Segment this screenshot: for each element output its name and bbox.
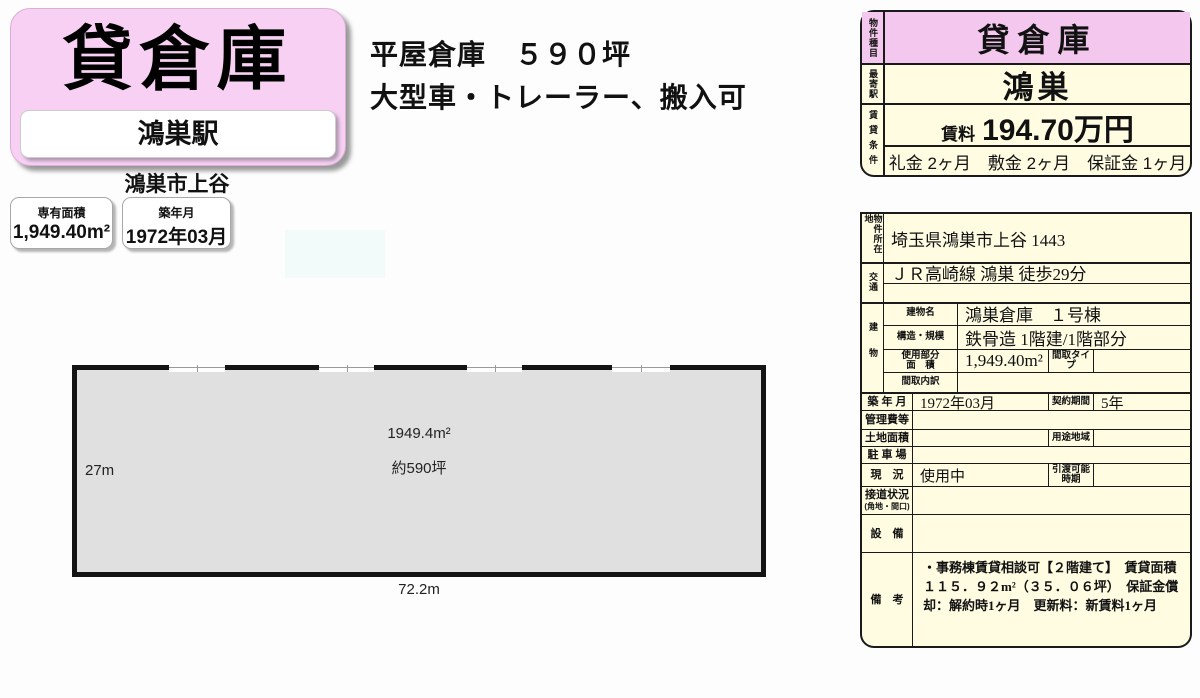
parking-value — [913, 447, 1190, 463]
equipment-value — [913, 515, 1190, 552]
property-type-title: 貸倉庫 — [11, 9, 345, 107]
management-fee-label: 管理費等 — [862, 411, 912, 429]
summary-type-label: 物件種目 — [868, 18, 877, 58]
remarks-value: ・事務棟賃貸相談可【２階建て】 賃貸面積 １１５．９２m²（３５．０６坪） 保証… — [913, 553, 1190, 646]
summary-type-label-cell: 物件種目 — [862, 12, 883, 63]
headline-line1: 平屋倉庫 ５９０坪 — [370, 33, 631, 73]
station-box: 鴻巣駅 — [20, 110, 336, 158]
exclusive-area-value: 1,949.40m² — [11, 222, 112, 244]
contract-value: 5年 — [1094, 394, 1190, 410]
summary-type-value: 貸倉庫 — [885, 12, 1190, 63]
built-value: 1972年03月 — [913, 394, 1048, 410]
transport-line2 — [884, 284, 1190, 302]
transport-label-cell: 交通 — [862, 262, 883, 302]
fees-row: 礼金 2ヶ月 敷金 2ヶ月 保証金 1ヶ月 — [885, 147, 1190, 175]
summary-terms-label-cell: 賃貸条件 — [862, 105, 883, 175]
rent-row: 賃料 194.70万円 — [885, 105, 1190, 145]
property-banner: 貸倉庫 鴻巣駅 — [10, 8, 346, 166]
building-area-value: 1,949.40m² — [958, 350, 1048, 372]
floorplan-area-m2: 1949.4m² — [77, 425, 761, 442]
handover-label: 引渡可能 時期 — [1049, 464, 1093, 486]
built-date-box: 築年月 1972年03月 — [122, 197, 231, 249]
status-value: 使用中 — [913, 464, 1048, 486]
location-label-cell: 物件所在地 — [862, 214, 883, 262]
plan-detail-value — [958, 373, 1190, 392]
summary-station-value: 鴻巣 — [885, 65, 1190, 103]
road-label-line1: 接道状況 — [865, 489, 909, 501]
road-value — [913, 487, 1190, 514]
door-tick — [641, 365, 642, 372]
handover-value — [1094, 464, 1190, 486]
built-label: 築 年 月 — [862, 394, 912, 410]
building-area-label: 使用部分 面 積 — [884, 350, 957, 372]
door-opening-4 — [612, 365, 670, 372]
detail-table: 物件所在地 埼玉県鴻巣市上谷 1443 交通 ＪＲ高崎線 鴻巣 徒歩29分 建物… — [860, 212, 1192, 648]
building-structure-value: 鉄骨造 1階建/1階部分 — [958, 326, 1190, 349]
location-value: 埼玉県鴻巣市上谷 1443 — [884, 214, 1190, 262]
building-label: 建物 — [868, 322, 877, 374]
management-fee-value — [913, 411, 1190, 429]
built-date-value: 1972年03月 — [123, 222, 230, 249]
building-label-cell: 建物 — [862, 304, 883, 392]
contract-label: 契約期間 — [1049, 394, 1093, 410]
building-name-value: 鴻巣倉庫 １号棟 — [958, 302, 1190, 325]
station-name: 鴻巣駅 — [138, 119, 219, 149]
floorplan-area-tsubo: 約590坪 — [77, 457, 761, 478]
rent-value: 194.70万円 — [982, 105, 1134, 149]
city-name: 鴻巣市上谷 — [10, 168, 344, 198]
headline-line2: 大型車・トレーラー、搬入可 — [370, 76, 747, 116]
road-label: 接道状況 (角地・間口) — [862, 487, 912, 514]
plan-detail-label: 間取内訳 — [884, 373, 957, 392]
handover-label-line2: 時期 — [1061, 475, 1080, 486]
zoning-label: 用途地域 — [1049, 430, 1093, 446]
parking-label: 駐 車 場 — [862, 447, 912, 463]
land-area-label: 土地面積 — [862, 430, 912, 446]
building-area-label-line2: 面 積 — [906, 361, 935, 372]
scan-artifact — [285, 230, 385, 278]
transport-line1: ＪＲ高崎線 鴻巣 徒歩29分 — [884, 262, 1190, 283]
building-structure-label: 構造・規模 — [884, 326, 957, 349]
road-label-line2: (角地・間口) — [864, 501, 909, 513]
door-opening-3 — [467, 365, 522, 372]
remarks-label: 備 考 — [862, 553, 912, 646]
door-tick — [495, 365, 496, 372]
door-tick — [197, 365, 198, 372]
summary-station-label-cell: 最寄駅 — [862, 65, 883, 103]
land-area-value — [913, 430, 1048, 446]
exclusive-area-label: 専有面積 — [11, 204, 112, 221]
built-date-label: 築年月 — [123, 204, 230, 221]
exclusive-area-box: 専有面積 1,949.40m² — [10, 197, 113, 249]
location-label: 物件所在地 — [864, 214, 882, 262]
door-tick — [347, 365, 348, 372]
door-opening-2 — [319, 365, 374, 372]
status-label: 現 況 — [862, 464, 912, 486]
plan-type-value — [1094, 350, 1190, 372]
transport-label: 交通 — [868, 272, 877, 292]
rent-label: 賃料 — [941, 120, 975, 145]
summary-station-label: 最寄駅 — [868, 69, 877, 99]
floorplan-width-label: 72.2m — [72, 581, 766, 598]
floorplan: 27m 1949.4m² 約590坪 — [72, 365, 766, 577]
building-name-label: 建物名 — [884, 302, 957, 325]
summary-table: 物件種目 貸倉庫 最寄駅 鴻巣 賃貸条件 賃料 194.70万円 礼金 2ヶ月 … — [860, 10, 1192, 177]
zoning-value — [1094, 430, 1190, 446]
summary-terms-label: 賃貸条件 — [868, 110, 877, 170]
equipment-label: 設 備 — [862, 515, 912, 552]
plan-type-label: 間取タイプ — [1049, 350, 1093, 372]
door-opening-1 — [169, 365, 225, 372]
